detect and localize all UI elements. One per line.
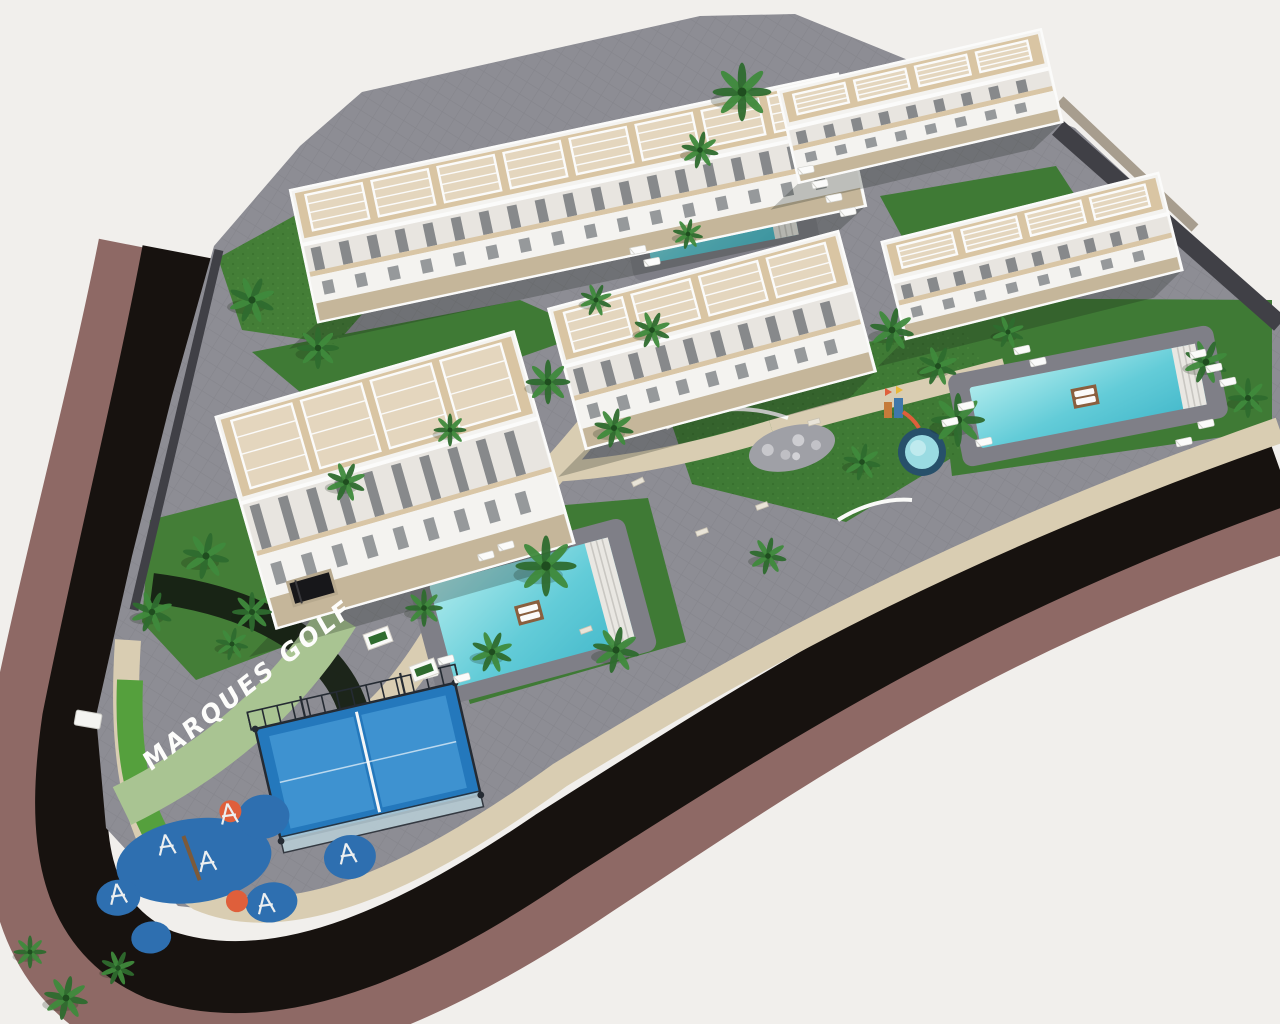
kids-pool xyxy=(898,428,946,476)
site-plan-render: MARQUES GOLF xyxy=(0,0,1280,1024)
render-canvas: MARQUES GOLF xyxy=(0,0,1280,1024)
